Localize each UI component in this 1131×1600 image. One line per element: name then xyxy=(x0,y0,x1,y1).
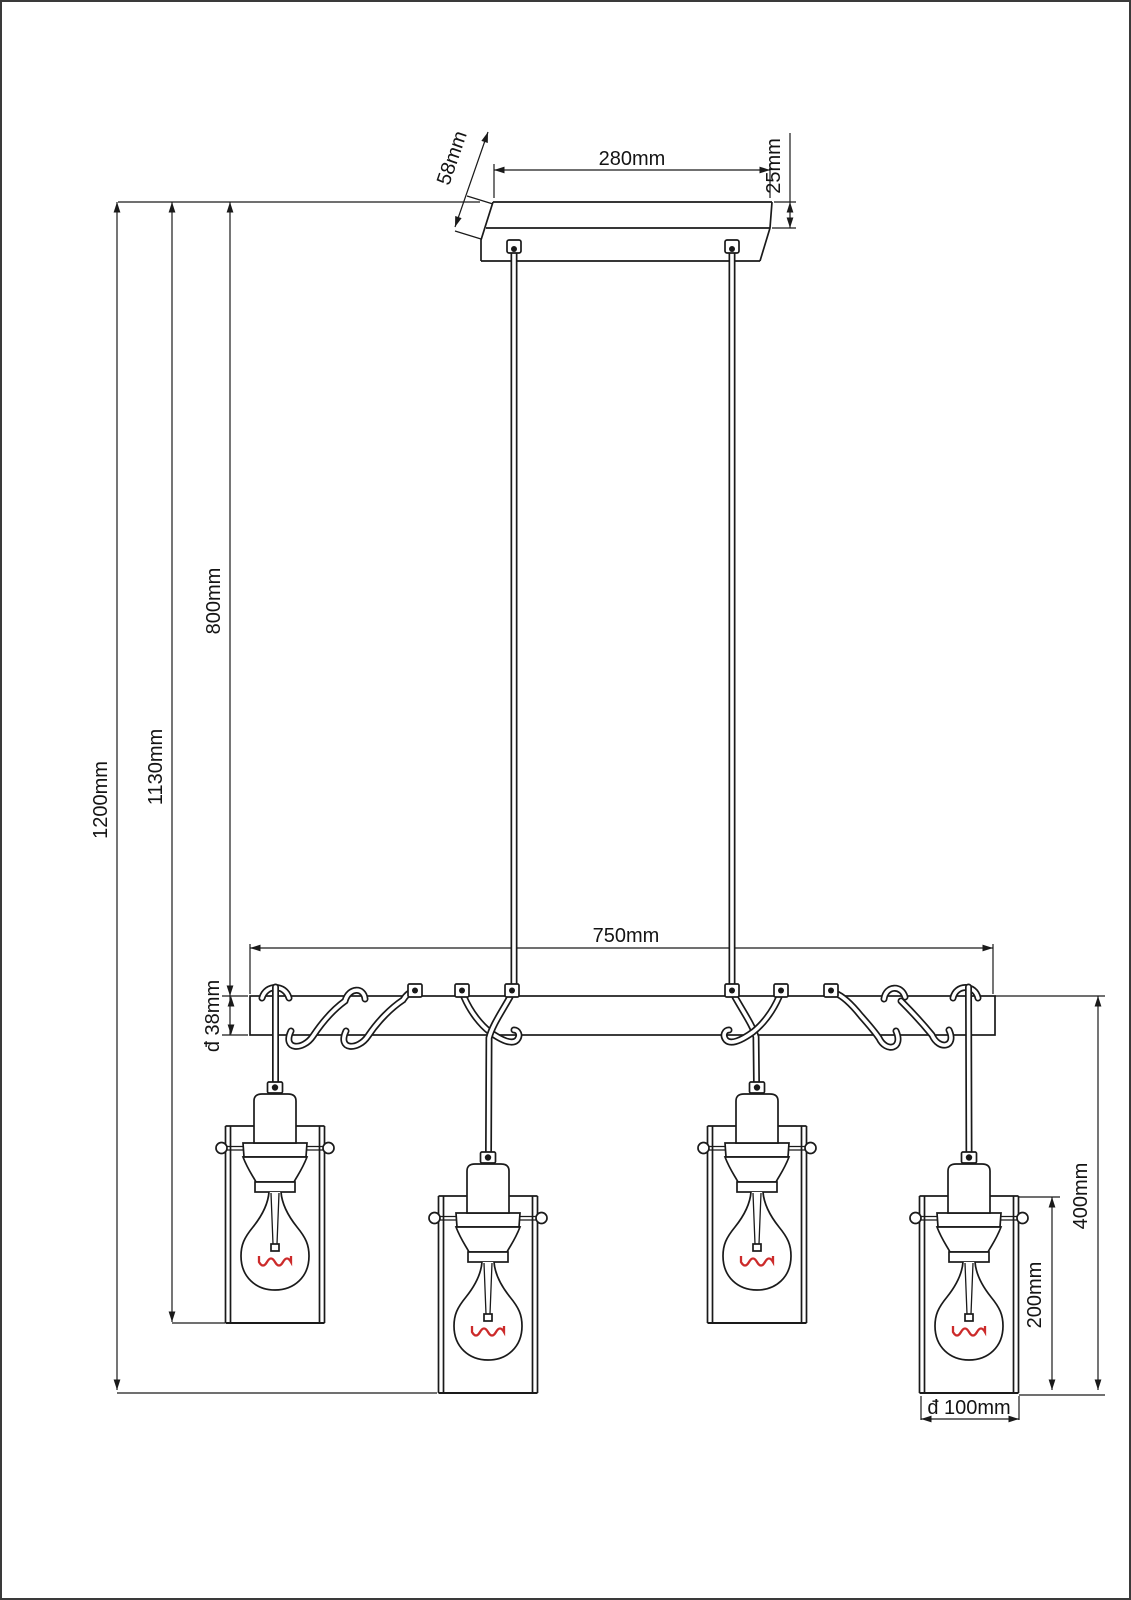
suspension-cables xyxy=(514,252,732,988)
beam-cable-clamps xyxy=(408,984,838,997)
dim-shade-assembly-drop: 400mm xyxy=(1070,1163,1092,1230)
canopy-cord-grips xyxy=(507,240,739,253)
dim-overall-drop: 1200mm xyxy=(90,761,112,839)
dim-drop-to-upper-shades: 1130mm xyxy=(145,729,167,805)
dim-canopy-width: 280mm xyxy=(599,148,666,170)
dim-shade-diameter: đ 100mm xyxy=(927,1397,1010,1419)
pendant-lamp-4 xyxy=(910,1152,1028,1393)
dim-canopy-depth: 58mm xyxy=(433,128,472,188)
dim-shade-height: 200mm xyxy=(1024,1262,1046,1329)
dim-beam-diameter: đ 38mm xyxy=(202,980,224,1052)
dim-canopy-thickness: 25mm xyxy=(763,138,785,194)
dim-suspension-drop: 800mm xyxy=(203,568,225,635)
pendant-lamp-1 xyxy=(216,1082,334,1323)
pendant-lamp-3 xyxy=(698,1082,816,1323)
drawing-root: 280mm 25mm 58mm 800mm 1130mm 1200mm 750m… xyxy=(90,128,1105,1422)
pendant-light-dimension-drawing: 280mm 25mm 58mm 800mm 1130mm 1200mm 750m… xyxy=(0,0,1131,1600)
dim-beam-length: 750mm xyxy=(593,925,660,947)
pendant-lamp-2 xyxy=(429,1152,547,1393)
technical-drawing-page: 280mm 25mm 58mm 800mm 1130mm 1200mm 750m… xyxy=(0,0,1131,1600)
